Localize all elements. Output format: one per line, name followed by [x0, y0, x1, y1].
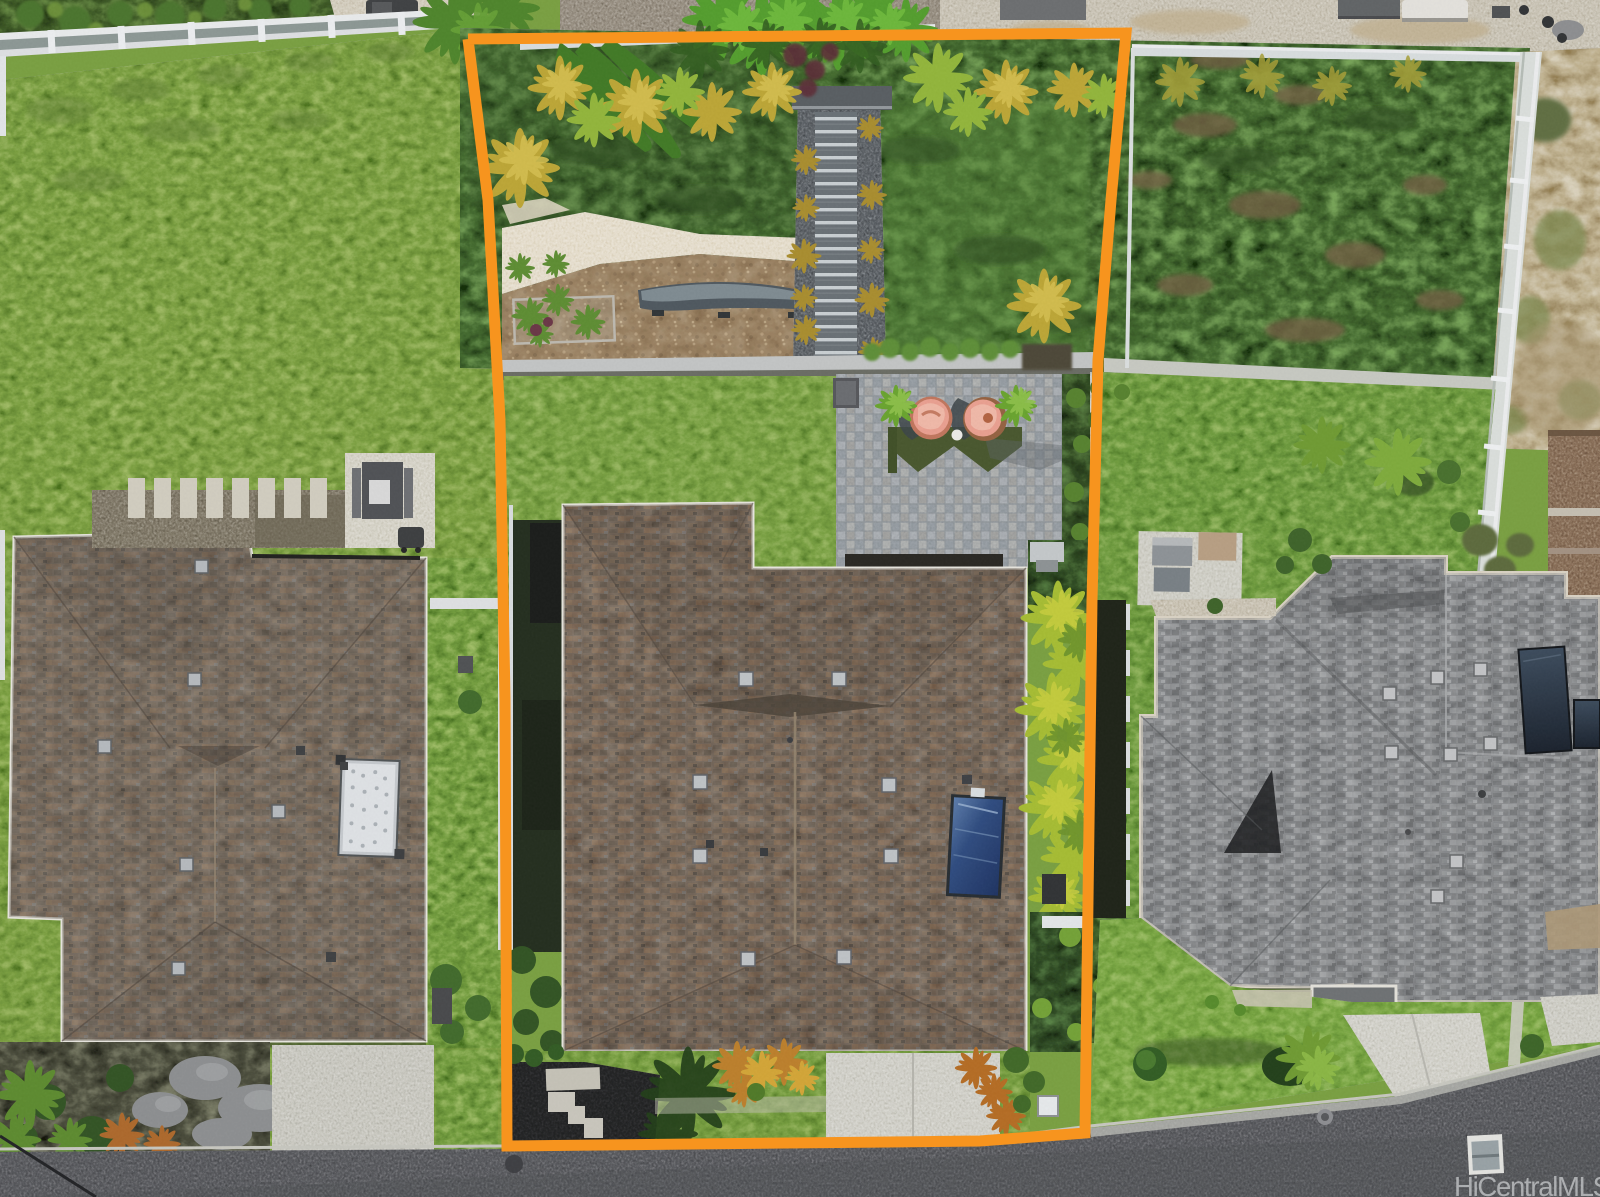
svg-text:HiCentralMLS: HiCentralMLS — [1454, 1171, 1600, 1197]
